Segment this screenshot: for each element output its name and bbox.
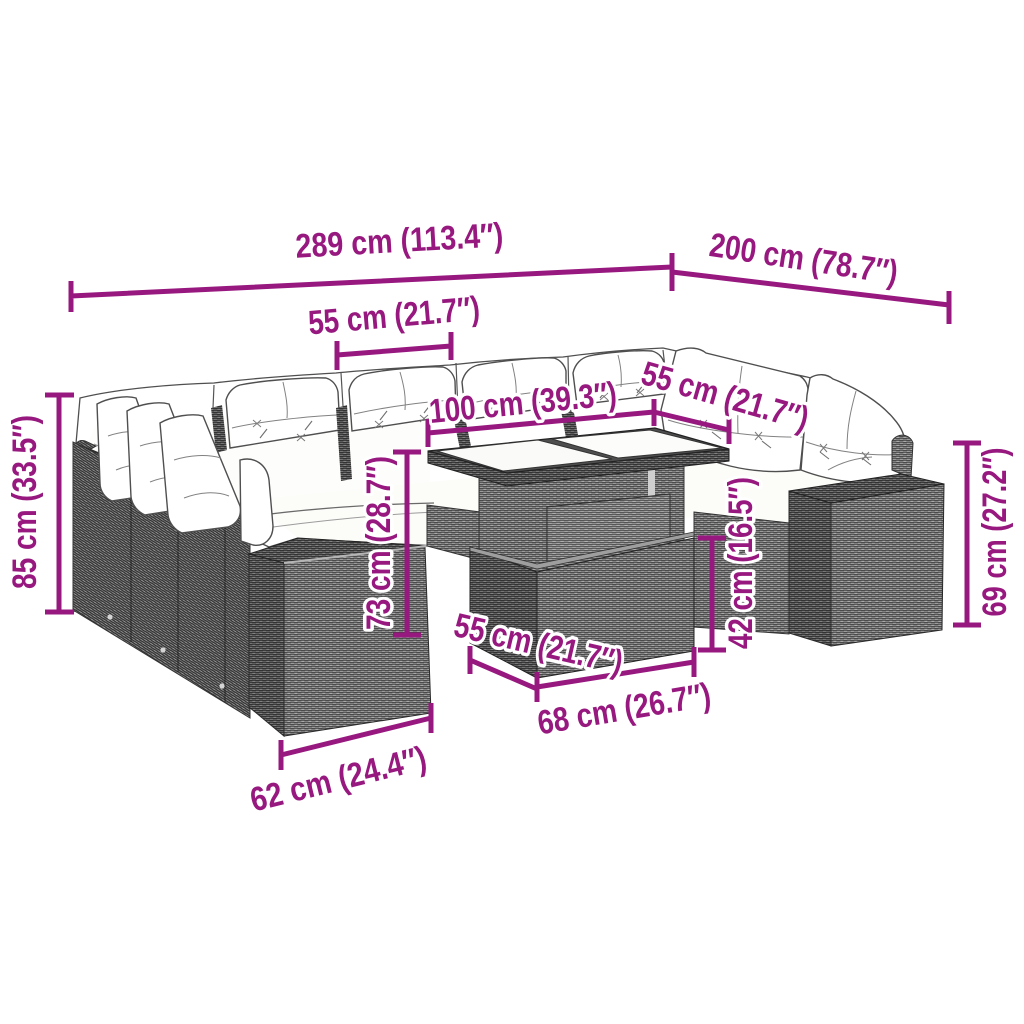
svg-text:73 cm (28.7″): 73 cm (28.7″) bbox=[360, 456, 398, 630]
svg-text:69 cm (27.2″): 69 cm (27.2″) bbox=[976, 448, 1014, 617]
svg-text:85 cm (33.5″): 85 cm (33.5″) bbox=[6, 415, 44, 589]
svg-text:42 cm (16.5″): 42 cm (16.5″) bbox=[722, 477, 760, 649]
